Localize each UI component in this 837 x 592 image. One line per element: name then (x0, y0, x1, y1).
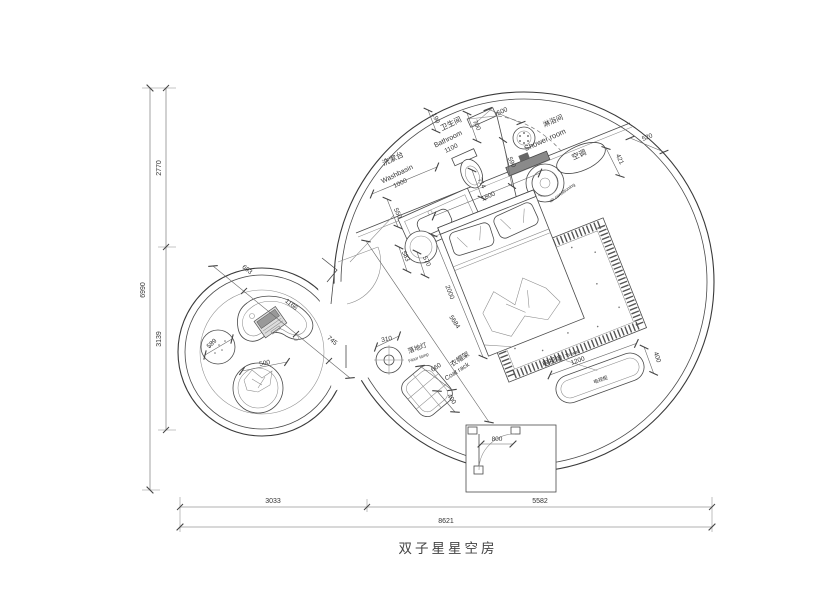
dim-8621: 8621 (438, 518, 454, 525)
floor-plan-drawing: 电视墙 TV wall 1200 电视柜 400 (0, 0, 837, 592)
dim-6990: 6990 (140, 282, 147, 298)
stool (201, 330, 235, 364)
dim-tv-400: 400 (652, 351, 662, 364)
dim-3139: 3139 (156, 331, 163, 347)
shower-label-cn: 淋浴间 (542, 112, 565, 129)
dim-693: 693 (241, 264, 254, 277)
drawing-title: 双子星星空房 (399, 541, 498, 556)
interior-dimensions (213, 109, 664, 422)
shower-label-en: Shower room (523, 127, 567, 153)
ac-label-cn: 空调 (570, 147, 588, 162)
dim-3033: 3033 (265, 498, 281, 505)
dim-1800: 1800 (480, 190, 496, 202)
outer-dimensions: 2770 3139 6990 3033 5582 8621 (140, 85, 715, 532)
dim-2770: 2770 (156, 160, 163, 176)
floor-plan-page: 电视墙 TV wall 1200 电视柜 400 (0, 0, 837, 592)
entrance-vestibule (466, 425, 556, 492)
corridor (318, 247, 382, 392)
dim-coat-400: 400 (445, 393, 457, 406)
tv-wall-label-cn: 电视墙 (541, 353, 564, 369)
dim-421: 421 (614, 153, 625, 166)
round-chair (233, 362, 287, 413)
dim-5582: 5582 (532, 498, 548, 505)
dim-2000: 2000 (443, 284, 455, 300)
tv-cabinet-label: 电视柜 (592, 374, 609, 386)
washbasin-label-cn: 洗漱台 (380, 149, 405, 168)
door-post (511, 427, 520, 434)
dim-1166: 1166 (283, 298, 299, 312)
dim-door-800: 800 (492, 436, 503, 443)
dim-lamp-310: 310 (381, 335, 393, 344)
dim-coat-660: 660 (430, 362, 443, 374)
coat-rack (398, 361, 457, 420)
door-post (468, 427, 477, 434)
dim-5684: 5684 (447, 314, 461, 330)
